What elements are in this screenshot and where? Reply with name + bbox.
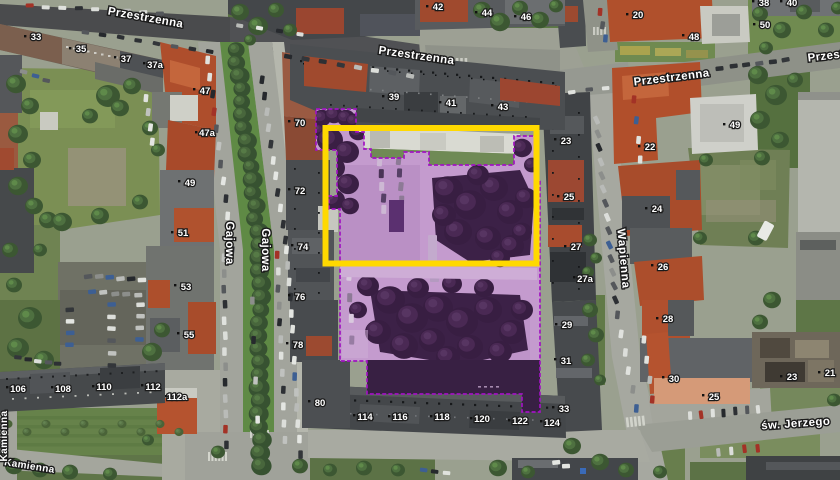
svg-text:76: 76 — [295, 292, 306, 303]
svg-text:51: 51 — [178, 228, 189, 239]
svg-text:53: 53 — [181, 282, 192, 293]
svg-text:55: 55 — [184, 330, 195, 341]
svg-text:28: 28 — [663, 314, 674, 325]
svg-text:35: 35 — [76, 44, 87, 55]
svg-text:23: 23 — [787, 372, 798, 383]
svg-text:37: 37 — [121, 54, 132, 65]
svg-text:124: 124 — [544, 418, 561, 429]
svg-text:41: 41 — [446, 98, 457, 109]
svg-text:114: 114 — [357, 412, 373, 423]
svg-text:106: 106 — [10, 384, 26, 395]
svg-text:Gajowa: Gajowa — [259, 228, 271, 272]
svg-text:33: 33 — [559, 404, 570, 415]
svg-text:48: 48 — [689, 32, 700, 43]
svg-text:120: 120 — [474, 414, 490, 425]
svg-text:40: 40 — [787, 0, 798, 9]
svg-text:47a: 47a — [199, 128, 216, 139]
svg-text:33: 33 — [31, 32, 42, 43]
svg-text:72: 72 — [295, 186, 306, 197]
svg-text:44: 44 — [482, 8, 493, 19]
svg-text:43: 43 — [498, 102, 509, 113]
svg-text:25: 25 — [564, 192, 575, 203]
svg-text:50: 50 — [760, 20, 771, 31]
svg-text:46: 46 — [521, 12, 532, 23]
svg-text:25: 25 — [709, 392, 720, 403]
svg-text:27a: 27a — [577, 274, 594, 285]
svg-text:78: 78 — [293, 340, 304, 351]
svg-text:112a: 112a — [167, 392, 188, 403]
svg-text:118: 118 — [434, 412, 449, 423]
svg-text:Gajowa: Gajowa — [223, 221, 235, 265]
svg-text:49: 49 — [730, 120, 741, 131]
svg-text:110: 110 — [96, 382, 111, 393]
svg-text:108: 108 — [55, 384, 71, 395]
svg-text:74: 74 — [298, 242, 309, 253]
svg-text:38: 38 — [759, 0, 770, 9]
svg-text:39: 39 — [389, 92, 400, 103]
svg-text:26: 26 — [658, 262, 669, 273]
svg-text:49: 49 — [185, 178, 196, 189]
svg-text:31: 31 — [561, 356, 572, 367]
svg-text:21: 21 — [825, 368, 836, 379]
svg-text:42: 42 — [433, 2, 444, 13]
svg-text:122: 122 — [512, 416, 528, 427]
svg-text:70: 70 — [295, 118, 306, 129]
svg-text:23: 23 — [561, 136, 572, 147]
svg-text:22: 22 — [645, 142, 656, 153]
svg-text:47: 47 — [200, 86, 211, 97]
svg-text:116: 116 — [392, 412, 407, 423]
svg-text:Kamienna: Kamienna — [0, 410, 10, 461]
svg-text:29: 29 — [562, 320, 573, 331]
svg-text:37a: 37a — [147, 60, 164, 71]
svg-text:112: 112 — [145, 382, 160, 393]
svg-text:27: 27 — [571, 242, 582, 253]
svg-text:24: 24 — [652, 204, 663, 215]
svg-text:30: 30 — [669, 374, 680, 385]
svg-text:80: 80 — [315, 398, 326, 409]
svg-text:20: 20 — [633, 10, 644, 21]
